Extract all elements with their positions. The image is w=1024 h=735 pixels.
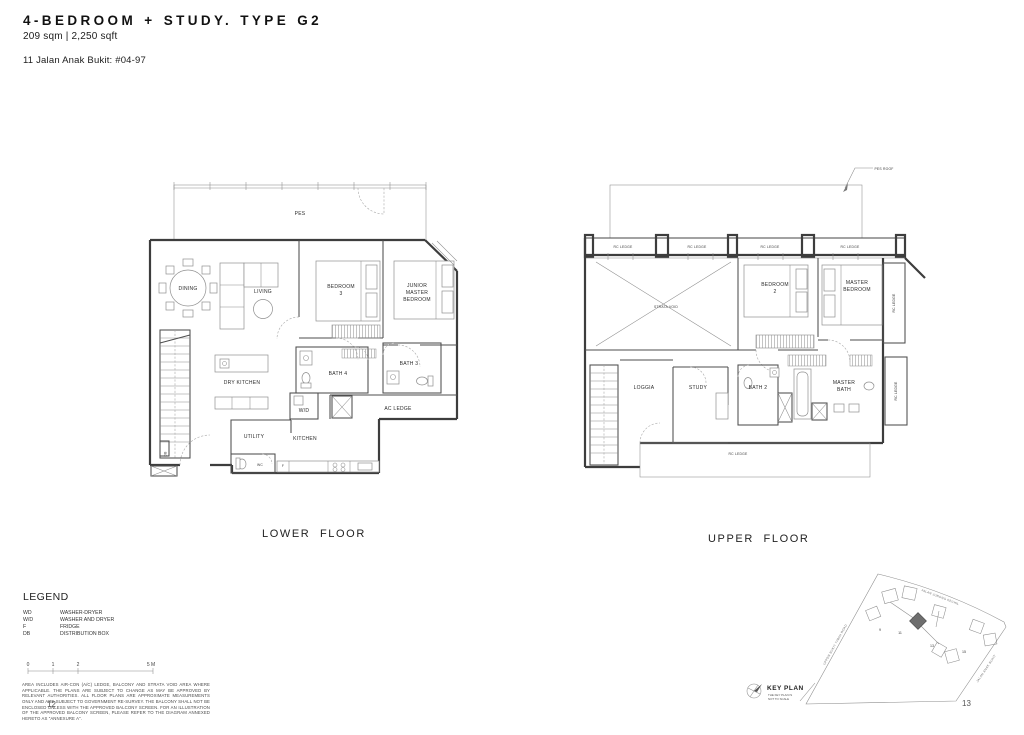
scale-5m: 5 M [147, 662, 155, 668]
page-title: 4-BEDROOM + STUDY. TYPE G2 [23, 13, 322, 28]
room-label-bedroom3: BEDROOM [327, 284, 355, 290]
header: 4-BEDROOM + STUDY. TYPE G2 209 sqm | 2,2… [23, 13, 322, 66]
room-label-junior1: JUNIOR [407, 283, 427, 289]
lower-floor-caption: LOWER FLOOR [262, 528, 366, 540]
loggia: LOGGIA [620, 360, 673, 443]
legend: LEGEND WD WASHER-DRYER W/D WASHER AND DR… [23, 591, 114, 638]
master-bedroom: MASTER BEDROOM [818, 265, 883, 362]
key-plan-map: 9 11 13 15 JALAN JURONG KECHIL UPPER BUK… [740, 565, 1024, 720]
room-label-bedroom2: BEDROOM [761, 282, 789, 288]
room-label-pes: PES [295, 211, 306, 217]
keyplan-note2: NOT TO SCALE [768, 697, 789, 701]
room-label-junior3: BEDROOM [403, 297, 431, 303]
room-label-master-bath2: BATH [837, 387, 851, 393]
keyplan-legend: KEY PLAN THE KEY PLAN IS NOT TO SCALE [747, 683, 815, 701]
washer-dryer-closet: W/D [290, 393, 318, 419]
rc-ledge-right-upper: RC LEDGE [883, 263, 905, 343]
floorplan-page: 4-BEDROOM + STUDY. TYPE G2 209 sqm | 2,2… [0, 0, 1024, 735]
staircase-lower: DB [160, 330, 190, 458]
label-rc-ledge-4: RC LEDGE [841, 245, 860, 249]
room-label-master2: BEDROOM [843, 287, 871, 293]
label-rc-ledge-3: RC LEDGE [761, 245, 780, 249]
room-label-loggia: LOGGIA [634, 385, 655, 391]
study: STUDY [673, 367, 728, 443]
room-label-bath2: BATH 2 [749, 385, 768, 391]
pes-roof: PES ROOF [610, 167, 894, 238]
rc-ledge-bottom: RC LEDGE [640, 443, 870, 477]
legend-row-db: DB DISTRIBUTION BOX [23, 631, 114, 638]
block-number-9: 9 [879, 628, 881, 632]
bath2: BATH 2 [738, 365, 792, 425]
label-strata-void: STRATA VOID [654, 305, 678, 309]
svg-text:RC LEDGE: RC LEDGE [894, 381, 898, 400]
pes-terrace: PES [174, 182, 426, 240]
dry-kitchen: DRY KITCHEN [215, 355, 268, 409]
room-label-wc: WC [257, 463, 263, 467]
legend-row-fridge: F FRIDGE [23, 624, 114, 631]
label-pes-roof: PES ROOF [874, 167, 893, 171]
keyplan-title: KEY PLAN [767, 685, 804, 692]
legend-row-wd2: W/D WASHER AND DRYER [23, 617, 114, 624]
highlighted-block-11 [910, 613, 927, 630]
block-number-13: 13 [930, 644, 934, 648]
page-number-left: 12 [47, 700, 56, 709]
strata-void: STRATA VOID [585, 258, 738, 350]
upper-floor-caption: UPPER FLOOR [708, 533, 809, 545]
road-jalan-anak-bukit: JALAN ANAK BUKIT [975, 654, 997, 683]
legend-title: LEGEND [23, 591, 114, 603]
scale-1: 1 [52, 662, 55, 668]
upper-floor-plan: PES ROOF RC LEDGE RC LEDGE RC LEDGE RC L… [578, 155, 938, 485]
scale-bar: 0 1 2 5 M [20, 658, 170, 678]
label-db: DB [164, 451, 168, 457]
room-label-master-bath1: MASTER [833, 380, 855, 386]
utility-room: UTILITY [231, 420, 291, 454]
rc-ledge-right-lower: RC LEDGE [885, 357, 907, 425]
svg-text:RC LEDGE: RC LEDGE [892, 293, 896, 312]
label-rc-ledge-2: RC LEDGE [688, 245, 707, 249]
room-label-master1: MASTER [846, 280, 868, 286]
room-label-dining: DINING [179, 286, 198, 292]
legend-row-wd: WD WASHER-DRYER [23, 610, 114, 617]
room-label-wd: W/D [299, 408, 310, 414]
bedroom3: BEDROOM 3 [277, 240, 383, 360]
room-label-bath4: BATH 4 [329, 371, 348, 377]
leader-arrow [843, 183, 848, 192]
scale-2: 2 [77, 662, 80, 668]
room-label-dry-kitchen: DRY KITCHEN [224, 380, 261, 386]
room-label-kitchen: KITCHEN [293, 436, 317, 442]
room-label-utility: UTILITY [244, 434, 265, 440]
bath4: BATH 4 [296, 347, 376, 393]
lower-floor-plan: PES DINING [136, 175, 466, 485]
room-label-study: STUDY [689, 385, 708, 391]
living-furniture: LIVING [220, 263, 278, 329]
room-label-living: LIVING [254, 289, 272, 295]
label-rc-ledge-1: RC LEDGE [614, 245, 633, 249]
keyplan-buildings [866, 586, 997, 663]
dining-furniture: DINING [159, 259, 217, 317]
room-label-junior2: MASTER [406, 290, 428, 296]
bath3: BATH 3 [383, 343, 441, 393]
svg-text:RC LEDGE: RC LEDGE [729, 452, 748, 456]
unit-address: 11 Jalan Anak Bukit: #04-97 [23, 55, 322, 66]
master-bath: MASTER BATH [788, 355, 874, 420]
unit-area: 209 sqm | 2,250 sqft [23, 31, 322, 42]
room-label-bath3: BATH 3 [400, 361, 419, 367]
room-label-bedroom2-num: 2 [773, 289, 776, 295]
kitchen: KITCHEN F [277, 436, 379, 472]
road-jalan-jurong-kechil: JALAN JURONG KECHIL [921, 588, 960, 606]
room-label-bedroom3-num: 3 [339, 291, 342, 297]
staircase-upper [590, 365, 618, 465]
label-fridge: F [282, 464, 284, 468]
ac-ledge: AC LEDGE [330, 395, 457, 419]
block-number-15: 15 [962, 650, 966, 654]
room-label-ac-ledge: AC LEDGE [384, 406, 412, 412]
road-upper-bukit-timah: UPPER BUKIT TIMAH ROAD [822, 623, 848, 666]
scale-0: 0 [27, 662, 30, 668]
wc-room: WC [231, 454, 275, 473]
block-number-11: 11 [898, 631, 902, 635]
